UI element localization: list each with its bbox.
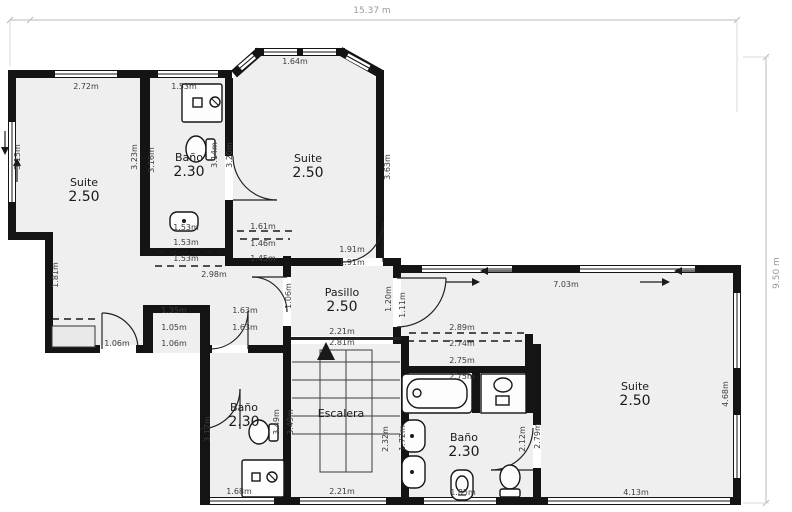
dim-label: 1.63m [232,306,258,315]
dim-label: 2.12m [518,426,527,452]
room-value-pasillo: 2.50 [326,299,357,315]
dim-label: 3.63m [383,154,392,180]
room-label-suite-top-left: Suite [70,176,98,189]
dim-label: 3.17m [203,416,212,442]
dim-label: 2.21m [329,327,355,336]
floorplan-svg: 15.37 m 9.50 m 2.72m 1.53m 1.64m 1.53m 1… [0,0,792,512]
dim-label: 2.81m [329,338,355,347]
sink-icon [402,456,425,488]
dim-label: 2.89m [449,323,475,332]
room-label-suite-top-right: Suite [294,152,322,165]
dim-label: 3.49m [272,409,281,435]
room-value-bano-bottom-center: 2.30 [448,444,479,460]
dim-label: 2.75m [449,356,475,365]
room-value-suite-top-left: 2.50 [68,189,99,205]
dim-label: 1.11m [398,292,407,318]
dim-label: 1.53m [173,223,199,232]
dim-label: 1.06m [104,339,130,348]
dim-label: 1.46m [250,239,276,248]
dim-label: 1.05m [161,323,187,332]
dim-label: 3.20m [225,142,234,168]
dim-label: 4.13m [623,488,649,497]
dim-label: 1.91m [339,245,365,254]
dim-label: 1.64m [282,57,308,66]
dim-label: 1.45m [250,254,276,263]
dim-label: 2.98m [201,270,227,279]
room-label-bano-top: Baño [175,151,203,164]
room-value-suite-top-right: 2.50 [292,165,323,181]
dim-label: 1.06m [161,339,187,348]
dim-label: 1.53m [173,238,199,247]
floorplan-canvas: 15.37 m 9.50 m 2.72m 1.53m 1.64m 1.53m 1… [0,0,792,512]
dim-label: 3.49m [286,409,295,435]
dim-label: 2.75m [449,372,475,381]
dim-label: 1.53m [171,82,197,91]
room-floors [16,56,733,497]
overall-height-label: 9.50 m [772,257,782,289]
dim-label: 2.32m [381,426,390,452]
room-value-bano-bottom-left: 2.30 [228,414,259,430]
dim-label: 1.85m [450,488,476,497]
dim-label: 2.72m [73,82,99,91]
room-label-bano-bottom-left: Baño [230,401,258,414]
dim-label: 1.61m [250,222,276,231]
dim-label: 4.68m [721,381,730,407]
toilet-icon [500,465,520,497]
dim-label: 2.79m [533,423,542,449]
room-label-bano-bottom-center: Baño [450,431,478,444]
dim-label: 1.35m [161,306,187,315]
room-label-pasillo: Pasillo [325,286,360,299]
washbasin-icon [481,374,526,413]
dim-label: 1.72m [398,425,407,451]
dim-label: 3.16m [147,147,156,173]
dim-label: 3.14m [210,142,219,168]
room-label-escalera: Escalera [318,407,365,420]
dim-label: 1.53m [173,254,199,263]
dim-label: 1.20m [384,286,393,312]
dim-label: 3.15m [13,144,22,170]
dim-label: 1.68m [226,487,252,496]
dim-label: 1.81m [51,262,60,288]
closet-cabinet [52,326,95,347]
dim-label: 2.74m [449,339,475,348]
dim-label: 1.06m [284,283,293,309]
dim-label: 2.21m [329,487,355,496]
dim-label: 7.03m [553,280,579,289]
dim-label: 3.23m [130,144,139,170]
dim-label: 1.63m [232,323,258,332]
dim-label: 1.91m [339,258,365,267]
overall-width-label: 15.37 m [353,6,390,16]
room-label-suite-right: Suite [621,380,649,393]
room-value-suite-right: 2.50 [619,393,650,409]
room-value-bano-top: 2.30 [173,164,204,180]
